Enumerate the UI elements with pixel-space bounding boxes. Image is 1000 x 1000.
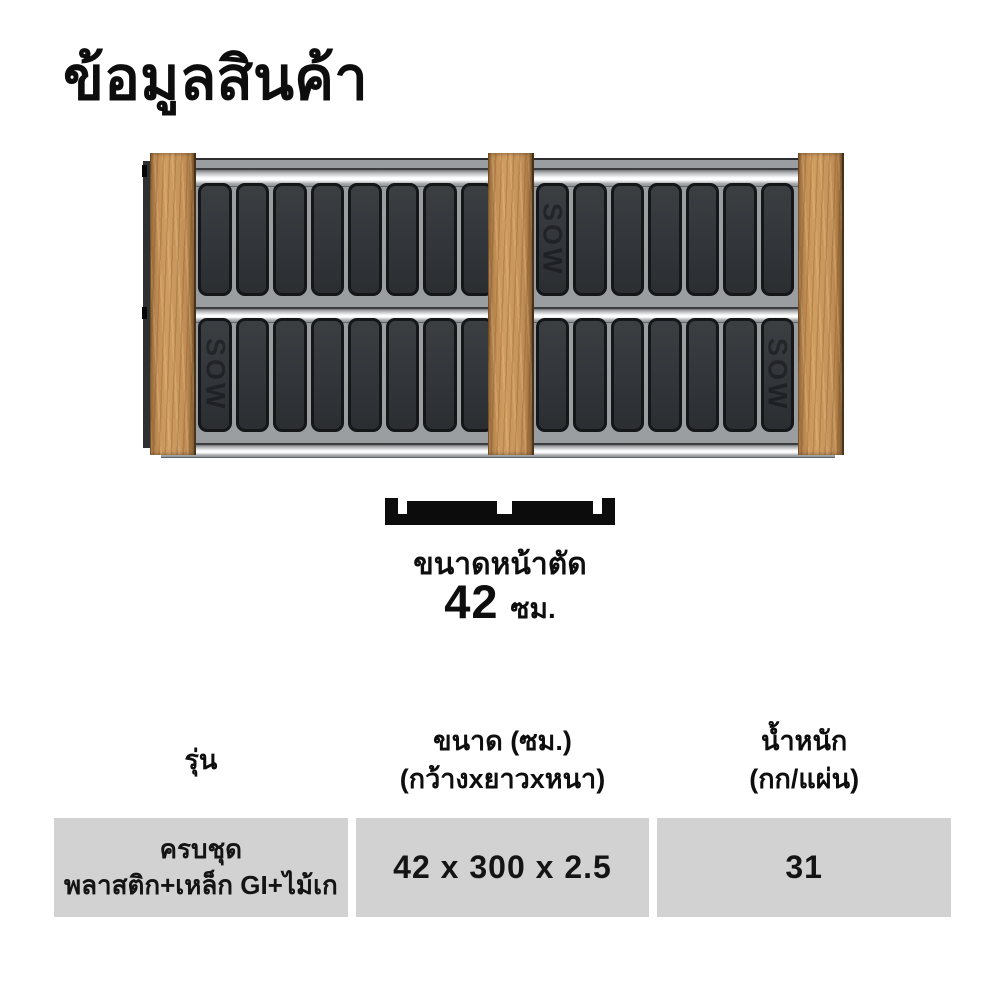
cell-size: 42 x 300 x 2.5 xyxy=(356,818,650,917)
slat xyxy=(236,183,270,296)
edge-notch xyxy=(142,165,147,177)
page: ข้อมูลสินค้า SOW SOW SOW ขนาดหน้าตัด 42ซ… xyxy=(0,0,1000,1000)
slat xyxy=(611,183,645,296)
slat xyxy=(423,318,457,432)
slat xyxy=(536,318,570,432)
header-weight-line1: น้ำหนัก xyxy=(657,723,951,761)
cross-section-block xyxy=(512,501,593,525)
brand-label-sow: SOW xyxy=(198,318,232,432)
header-size-line2: (กว้างxยาวxหนา) xyxy=(356,761,650,799)
wood-post-center xyxy=(488,153,534,455)
slat xyxy=(311,318,345,432)
slat xyxy=(311,183,345,296)
cell-model: ครบชุด พลาสติก+เหล็ก GI+ไม้เก xyxy=(54,818,348,917)
page-title: ข้อมูลสินค้า xyxy=(63,38,368,119)
cell-weight: 31 xyxy=(657,818,951,917)
cross-section-block xyxy=(407,501,497,525)
header-model-line1: รุ่น xyxy=(54,742,348,780)
header-weight-line2: (กก/แผ่น) xyxy=(657,761,951,799)
slat xyxy=(386,318,420,432)
slat xyxy=(648,183,682,296)
slat xyxy=(573,318,607,432)
header-size: ขนาด (ซม.) (กว้างxยาวxหนา) xyxy=(356,723,650,799)
edge-notch xyxy=(142,307,147,319)
cross-section-tab-right xyxy=(602,498,615,525)
slat xyxy=(386,183,420,296)
header-weight: น้ำหนัก (กก/แผ่น) xyxy=(657,723,951,799)
slat xyxy=(723,318,757,432)
brand-label-sow: SOW xyxy=(760,318,794,432)
slat xyxy=(761,183,795,296)
slat xyxy=(723,183,757,296)
header-size-line1: ขนาด (ซม.) xyxy=(356,723,650,761)
brand-label-sow: SOW xyxy=(535,183,569,296)
slat xyxy=(686,183,720,296)
wood-post-left xyxy=(150,153,196,455)
cross-section-tab-left xyxy=(385,498,398,525)
slat xyxy=(648,318,682,432)
cross-section-size-unit: ซม. xyxy=(511,593,556,624)
slat xyxy=(686,318,720,432)
slat xyxy=(573,183,607,296)
cross-section-size: 42ซม. xyxy=(0,574,1000,631)
spec-table-header-row: รุ่น ขนาด (ซม.) (กว้างxยาวxหนา) น้ำหนัก … xyxy=(54,712,951,810)
slat xyxy=(198,183,232,296)
cross-section-size-value: 42 xyxy=(444,575,498,628)
spec-table-row: ครบชุด พลาสติก+เหล็ก GI+ไม้เก 42 x 300 x… xyxy=(54,818,951,917)
slat xyxy=(273,318,307,432)
slat xyxy=(423,183,457,296)
wood-post-right xyxy=(798,153,844,455)
spec-table: รุ่น ขนาด (ซม.) (กว้างxยาวxหนา) น้ำหนัก … xyxy=(54,712,951,917)
product-image: SOW SOW SOW xyxy=(143,153,843,455)
slat xyxy=(348,183,382,296)
cross-section-diagram xyxy=(385,498,615,525)
slat xyxy=(273,183,307,296)
cell-model-line2: พลาสติก+เหล็ก GI+ไม้เก xyxy=(54,868,348,903)
header-model: รุ่น xyxy=(54,742,348,780)
slat xyxy=(611,318,645,432)
slat xyxy=(236,318,270,432)
slat xyxy=(348,318,382,432)
cell-model-line1: ครบชุด xyxy=(54,832,348,867)
